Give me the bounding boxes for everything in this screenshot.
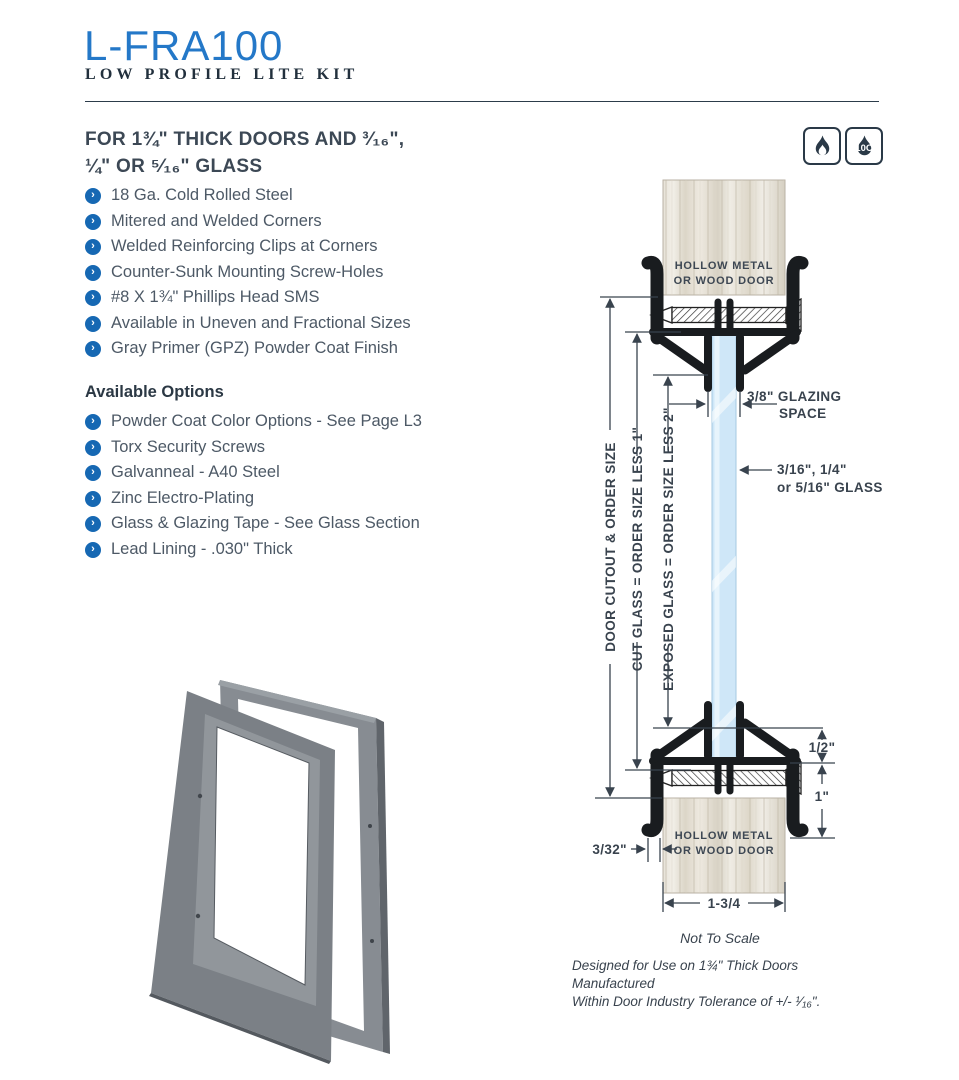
chevron-bullet-icon: › [85,290,101,306]
feature-text: Available in Uneven and Fractional Sizes [111,315,411,332]
feature-text: Welded Reinforcing Clips at Corners [111,238,378,255]
list-item: ›Welded Reinforcing Clips at Corners [85,238,505,255]
feature-text: Mitered and Welded Corners [111,213,322,230]
chevron-bullet-icon: › [85,491,101,507]
list-item: ›Powder Coat Color Options - See Page L3 [85,413,505,430]
list-item: ›#8 X 1¾" Phillips Head SMS [85,289,505,306]
intro-heading: FOR 1¾" THICK DOORS AND ³⁄₁₆", ¼" OR ⁵⁄₁… [85,126,565,180]
option-text: Lead Lining - .030" Thick [111,541,293,558]
options-heading: Available Options [85,383,505,402]
option-text: Torx Security Screws [111,439,265,456]
dim-3-32-label: 3/32" [592,842,627,857]
list-item: ›Glass & Glazing Tape - See Glass Sectio… [85,515,505,532]
dim-cut-glass-label: CUT GLASS = ORDER SIZE LESS 1" [630,427,645,672]
page-title: L-FRA100 [84,22,283,70]
dim-half-inch-label: 1/2" [809,740,836,755]
dim-glazing-space-line1: 3/8" GLAZING [747,389,841,404]
feature-text: 18 Ga. Cold Rolled Steel [111,187,293,204]
fire-rating-10c-label: 10C [847,143,881,154]
flame-icon [809,133,836,160]
door-label-top-line1: HOLLOW METAL [675,260,774,272]
chevron-bullet-icon: › [85,188,101,204]
chevron-bullet-icon: › [85,465,101,481]
dim-one-inch-label: 1" [815,789,830,804]
chevron-bullet-icon: › [85,341,101,357]
not-to-scale-note: Not To Scale [565,930,875,946]
footnote-line1: Designed for Use on 1¾" Thick Doors Manu… [572,957,884,993]
dim-exposed-glass-label: EXPOSED GLASS = ORDER SIZE LESS 2" [661,407,676,691]
option-text: Glass & Glazing Tape - See Glass Section [111,515,420,532]
fire-rating-icons: 10C [803,127,883,165]
door-label-top-line2: OR WOOD DOOR [674,275,775,287]
door-section-bottom: HOLLOW METAL OR WOOD DOOR [663,798,785,893]
door-label-bottom-line2: OR WOOD DOOR [674,845,775,857]
intro-heading-line2: ¼" OR ⁵⁄₁₆" GLASS [85,153,565,180]
chevron-bullet-icon: › [85,316,101,332]
dim-door-thickness-label: 1-3/4 [708,896,741,911]
option-text: Powder Coat Color Options - See Page L3 [111,413,422,430]
feature-text: #8 X 1¾" Phillips Head SMS [111,289,320,306]
dim-glazing-space-line2: SPACE [779,406,827,421]
list-item: ›Mitered and Welded Corners [85,213,505,230]
list-item: ›Zinc Electro-Plating [85,490,505,507]
list-item: ›Lead Lining - .030" Thick [85,541,505,558]
page-subtitle: LOW PROFILE LITE KIT [85,66,359,84]
list-item: ›Torx Security Screws [85,439,505,456]
list-item: ›Galvanneal - A40 Steel [85,464,505,481]
technical-diagram: HOLLOW METAL OR WOOD DOOR HOLLOW METAL O… [565,172,895,927]
dim-glass-thickness-line1: 3/16", 1/4" [777,462,847,477]
header-divider [85,101,879,102]
list-item: ›Available in Uneven and Fractional Size… [85,315,505,332]
chevron-bullet-icon: › [85,239,101,255]
door-section-top: HOLLOW METAL OR WOOD DOOR [663,180,785,295]
fire-rating-10c-icon: 10C [845,127,883,165]
option-text: Galvanneal - A40 Steel [111,464,280,481]
chevron-bullet-icon: › [85,440,101,456]
list-item: ›Gray Primer (GPZ) Powder Coat Finish [85,340,505,357]
feature-text: Gray Primer (GPZ) Powder Coat Finish [111,340,398,357]
footnote-line2: Within Door Industry Tolerance of +/- ¹⁄… [572,993,884,1011]
option-text: Zinc Electro-Plating [111,490,254,507]
diagram-footnote: Designed for Use on 1¾" Thick Doors Manu… [572,957,884,1010]
fire-rating-icon [803,127,841,165]
feature-list: ›18 Ga. Cold Rolled Steel ›Mitered and W… [85,187,505,366]
dim-door-cutout-label: DOOR CUTOUT & ORDER SIZE [603,442,618,652]
dim-glass-thickness-line2: or 5/16" GLASS [777,480,883,495]
feature-text: Counter-Sunk Mounting Screw-Holes [111,264,383,281]
chevron-bullet-icon: › [85,214,101,230]
chevron-bullet-icon: › [85,414,101,430]
product-photo-lite-kit-frame [148,676,448,1066]
intro-heading-line1: FOR 1¾" THICK DOORS AND ³⁄₁₆", [85,126,565,153]
list-item: ›Counter-Sunk Mounting Screw-Holes [85,264,505,281]
chevron-bullet-icon: › [85,265,101,281]
available-options-section: Available Options ›Powder Coat Color Opt… [85,383,505,566]
door-label-bottom-line1: HOLLOW METAL [675,830,774,842]
chevron-bullet-icon: › [85,516,101,532]
list-item: ›18 Ga. Cold Rolled Steel [85,187,505,204]
chevron-bullet-icon: › [85,542,101,558]
